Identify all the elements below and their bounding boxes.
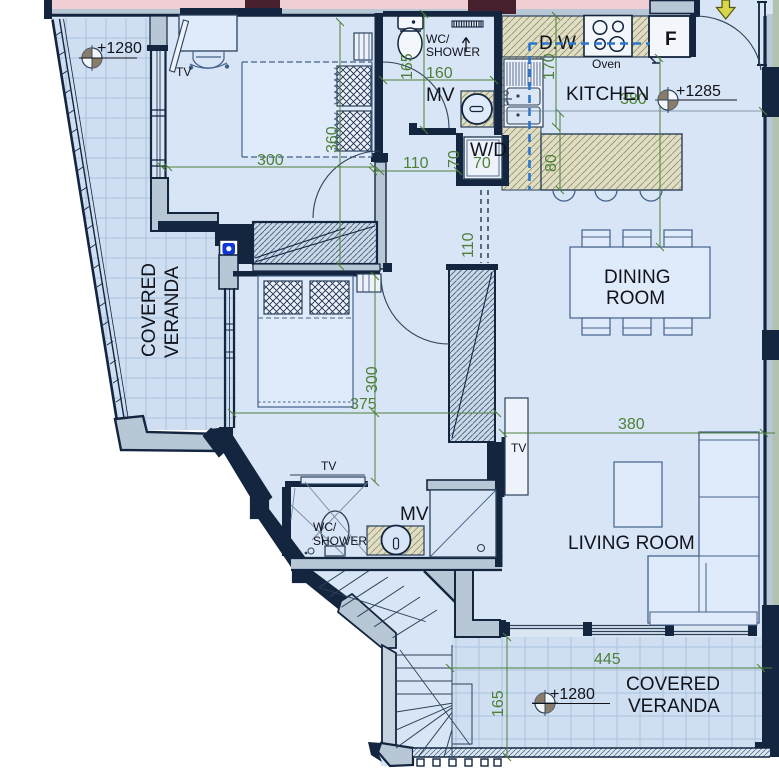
svg-text:300: 300	[257, 152, 284, 169]
svg-text:TV: TV	[176, 65, 191, 79]
svg-text:70: 70	[473, 155, 491, 172]
svg-text:+1280: +1280	[97, 40, 142, 57]
svg-text:LIVING ROOM: LIVING ROOM	[568, 533, 695, 554]
svg-text:375: 375	[350, 396, 377, 413]
svg-text:VERANDA: VERANDA	[162, 266, 183, 358]
svg-text:DINING: DINING	[604, 267, 671, 288]
svg-text:COVERED: COVERED	[139, 263, 160, 357]
svg-text:TV: TV	[321, 459, 336, 473]
svg-text:170: 170	[541, 53, 558, 80]
svg-text:VERANDA: VERANDA	[628, 696, 720, 717]
svg-text:ROOM: ROOM	[606, 288, 665, 309]
svg-text:SHOWER: SHOWER	[313, 534, 367, 548]
svg-text:445: 445	[594, 651, 621, 668]
svg-text:Oven: Oven	[592, 57, 621, 71]
svg-text:165: 165	[490, 690, 507, 717]
svg-text:360: 360	[324, 126, 341, 153]
svg-text:TV: TV	[511, 441, 526, 455]
svg-text:KITCHEN: KITCHEN	[566, 84, 649, 105]
svg-text:MV: MV	[426, 85, 455, 106]
svg-text:165: 165	[399, 53, 416, 80]
svg-text:+1280: +1280	[550, 686, 595, 703]
svg-text:F: F	[665, 29, 677, 50]
svg-text:110: 110	[403, 155, 429, 172]
svg-text:COVERED: COVERED	[626, 674, 720, 695]
svg-text:70: 70	[446, 150, 463, 168]
svg-text:300: 300	[364, 366, 381, 393]
svg-text:80: 80	[543, 154, 560, 172]
svg-text:WC/: WC/	[313, 520, 337, 534]
svg-text:+1285: +1285	[676, 83, 721, 100]
svg-text:380: 380	[618, 416, 645, 433]
svg-text:WC/: WC/	[426, 32, 450, 46]
svg-text:MV: MV	[400, 504, 429, 525]
svg-text:160: 160	[426, 65, 453, 82]
svg-text:SHOWER: SHOWER	[426, 45, 480, 59]
svg-text:110: 110	[460, 232, 477, 258]
